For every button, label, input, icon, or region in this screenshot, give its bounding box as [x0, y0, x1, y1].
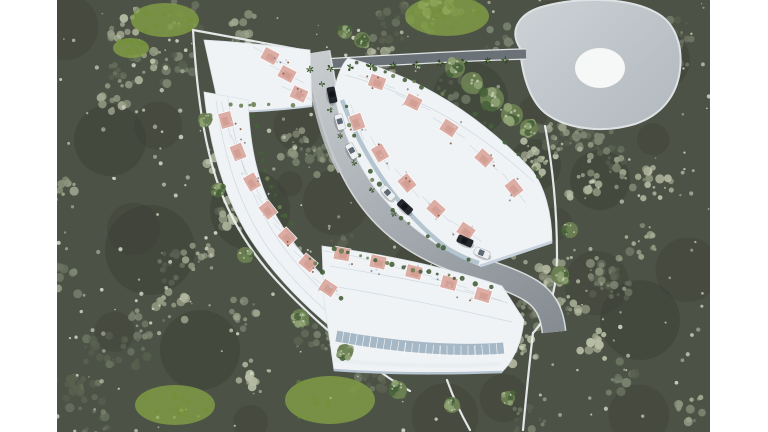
aerial-photo: [57, 0, 710, 432]
page: [0, 0, 768, 432]
helipad-circle: [575, 48, 625, 88]
render-svg: [57, 0, 710, 432]
lawn-patch: [135, 385, 215, 425]
